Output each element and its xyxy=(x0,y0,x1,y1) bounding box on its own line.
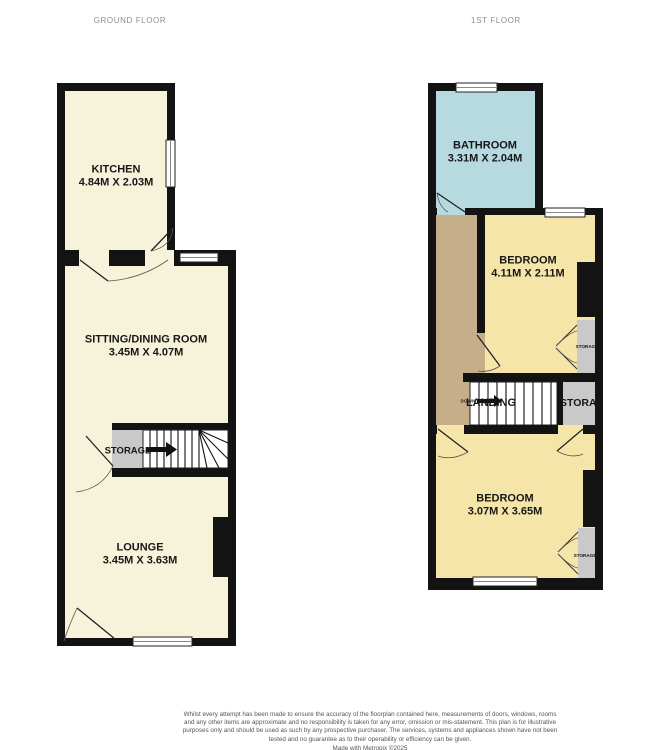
bedroom-front-label: BEDROOM 3.07M X 3.65M xyxy=(468,492,543,517)
door-gap xyxy=(477,333,485,373)
storage-mid-label: STORAGE xyxy=(560,397,600,410)
door-gap xyxy=(437,425,464,434)
room-dims: 3.45M X 3.63M xyxy=(103,554,178,567)
stairs-top-wall xyxy=(463,373,595,382)
bedroom-front-chimney xyxy=(583,470,595,527)
room-dims: 4.84M X 2.03M xyxy=(79,176,154,189)
room-name: BEDROOM xyxy=(491,254,564,267)
room-dims: 3.31M X 2.04M xyxy=(448,152,523,165)
disclaimer-text: Whilst every attempt has been made to en… xyxy=(180,711,560,744)
bedroom-rear-chimney xyxy=(577,262,595,317)
sitting-window xyxy=(180,253,218,262)
footer: Whilst every attempt has been made to en… xyxy=(180,711,560,750)
room-name: KITCHEN xyxy=(79,163,154,176)
bedroom-front-window xyxy=(473,577,537,586)
sitting-dining-label: SITTING/DINING ROOM 3.45M X 4.07M xyxy=(85,333,207,358)
ground-floor-title: GROUND FLOOR xyxy=(60,16,200,25)
room-name: SITTING/DINING ROOM xyxy=(85,333,207,346)
door-gap xyxy=(145,250,174,266)
kitchen-window xyxy=(166,140,175,187)
lounge-chimney xyxy=(213,517,228,577)
bathroom-window xyxy=(456,83,497,92)
bathroom-label: BATHROOM 3.31M X 2.04M xyxy=(448,139,523,164)
room-dims: 3.45M X 4.07M xyxy=(85,346,207,359)
bedroom-rear-label: BEDROOM 4.11M X 2.11M xyxy=(491,254,564,279)
bedroom-rear-window xyxy=(545,208,585,217)
room-dims: 3.07M X 3.65M xyxy=(468,505,543,518)
floorplan-page: GROUND FLOOR 1ST FLOOR KITCHEN 4.84M X 2… xyxy=(0,0,659,750)
lounge-label: LOUNGE 3.45M X 3.63M xyxy=(103,541,178,566)
kitchen-label: KITCHEN 4.84M X 2.03M xyxy=(79,163,154,188)
landing-label: LANDING xyxy=(466,397,516,409)
storage-upper-label: STORAGE xyxy=(575,343,599,350)
corridor-wall xyxy=(477,215,485,333)
storage-lower-label: STORAGE xyxy=(573,552,597,559)
first-floor-title: 1ST FLOOR xyxy=(426,16,566,25)
room-dims: 4.11M X 2.11M xyxy=(491,267,564,280)
room-name: BEDROOM xyxy=(468,492,543,505)
room-name: BATHROOM xyxy=(448,139,523,152)
lounge-window xyxy=(133,637,192,646)
credit-text: Made with Metropix ©2025 xyxy=(180,745,560,750)
floorplan-drawing xyxy=(0,0,659,750)
door-gap xyxy=(79,250,109,266)
storage-ground-label: STORAGE xyxy=(100,446,156,457)
room-name: LOUNGE xyxy=(103,541,178,554)
